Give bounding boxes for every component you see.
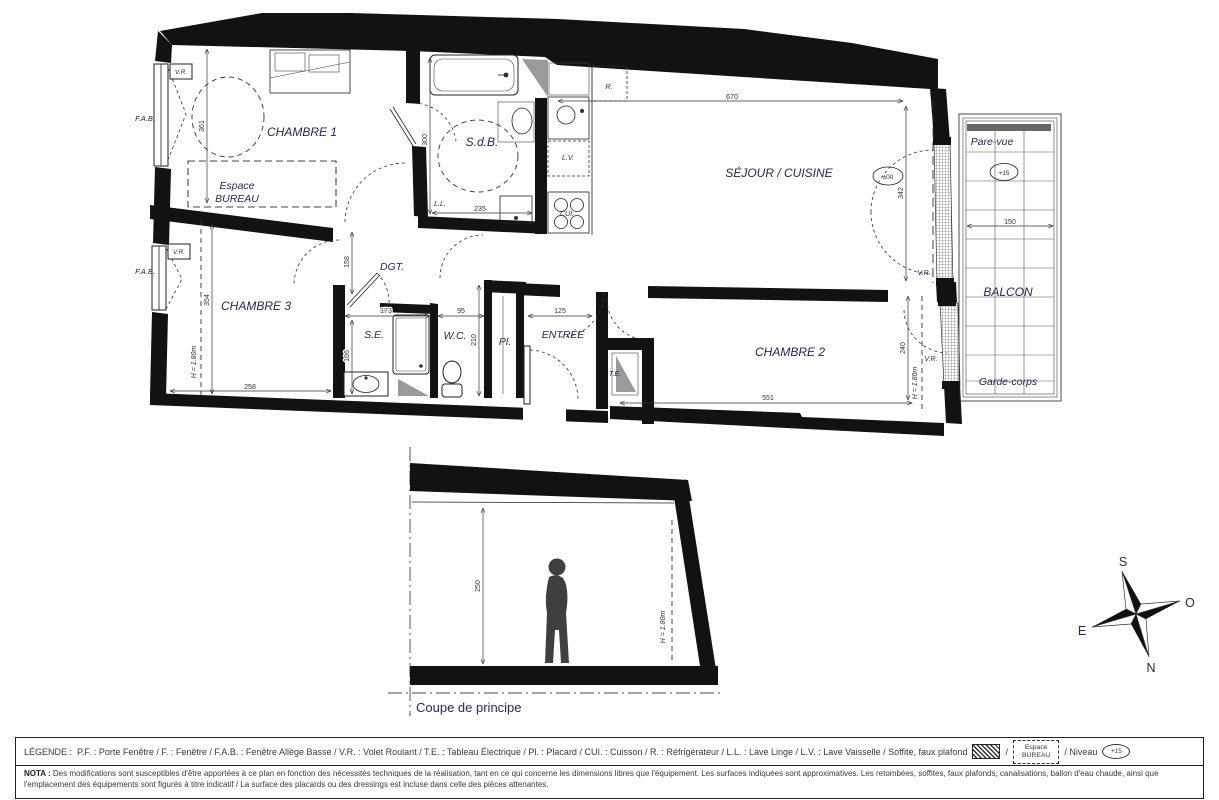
compass-n: N <box>1146 661 1155 675</box>
vr-label-4: V.R. <box>924 356 937 363</box>
dim-210: 210 <box>471 334 478 346</box>
sloped-ceiling-zone <box>192 77 264 157</box>
toilet-bowl <box>443 361 461 383</box>
dim-240: 240 <box>900 342 907 354</box>
soffite-triangle-se <box>398 379 429 396</box>
person-silhouette <box>545 559 569 664</box>
vr-label-1: V.R. <box>175 69 187 76</box>
te-niche: T.E. <box>608 350 642 406</box>
espace-bureau-zone: Espace BUREAU <box>188 161 336 207</box>
pare-vue-label: Pare-vue <box>971 136 1014 148</box>
plan-drawing: V.R. F.A.B. V.R. F.A.B. CHAMBRE 1 361 Es… <box>0 0 1219 735</box>
compass-s: S <box>1119 555 1127 569</box>
interior-walls <box>150 50 888 424</box>
room-label-chambre3: CHAMBRE 3 <box>221 299 291 313</box>
section-ceiling <box>410 463 692 501</box>
te-label: T.E. <box>609 371 621 378</box>
legend-band: LÉGENDE : P.F. : Porte Fenêtre / F. : Fe… <box>15 737 1204 799</box>
section-title: Coupe de principe <box>416 700 522 715</box>
compass-e: E <box>1078 624 1086 638</box>
pare-vue-screen <box>967 124 1051 131</box>
espace-bureau-line1: Espace <box>219 180 254 192</box>
soffite-triangle-sdb <box>522 59 548 97</box>
kitchen: R. L.V. CUI. <box>548 62 627 235</box>
room-chambre-2: CHAMBRE 2 551 240 H = 1.80m V.R. <box>607 296 947 412</box>
dim-150: 150 <box>1004 219 1016 226</box>
dim-158: 158 <box>344 256 351 268</box>
room-chambre-3: CHAMBRE 3 H = 1.80m 354 258 <box>170 220 339 396</box>
h180-section: H = 1.80m <box>660 611 667 644</box>
legend-niveau: / Niveau <box>1064 747 1097 757</box>
fab-label-2: F.A.B. <box>135 267 155 276</box>
door-arc-chambre2 <box>607 299 648 340</box>
niveau-badge: +15 <box>1102 744 1130 759</box>
nota-text: Des modifications sont susceptibles d'êt… <box>24 769 1158 789</box>
svg-text:±00: ±00 <box>883 174 894 181</box>
legend-sep: / <box>1005 747 1008 757</box>
toilet-tank <box>442 384 462 397</box>
section-view: 250 H = 1.80m Coupe de principe <box>388 447 722 716</box>
compass-o: O <box>1185 596 1195 610</box>
window-door-arc-2 <box>871 212 933 274</box>
nota-row: NOTA : Des modifications sont susceptibl… <box>15 766 1204 799</box>
room-label-sejour: SÉJOUR / CUISINE <box>725 165 833 180</box>
dim-342: 342 <box>898 187 905 199</box>
room-label-chambre2: CHAMBRE 2 <box>755 345 825 359</box>
dim-670: 670 <box>726 94 738 101</box>
dim-551: 551 <box>762 395 774 402</box>
sink-unit <box>548 97 589 139</box>
vr-label-3: V.R. <box>917 270 930 277</box>
balcony-window-strips <box>933 137 960 389</box>
door-arc-sdb <box>413 103 456 141</box>
room-placard: Pl. <box>499 296 511 394</box>
entrance-door-opening <box>523 403 566 424</box>
room-label-sdb: S.d.B. <box>466 135 499 149</box>
cabinet <box>549 63 589 95</box>
fab-label-1: F.A.B. <box>135 114 155 123</box>
fab-window-1: V.R. F.A.B. <box>135 64 192 166</box>
dim-258: 258 <box>244 384 256 391</box>
h180-chambre3: H = 1.80m <box>191 346 198 379</box>
door-arc-se <box>377 273 389 305</box>
dim-354: 354 <box>204 294 211 306</box>
legend-body: P.F. : Porte Fenêtre / F. : Fenêtre / F.… <box>77 747 967 757</box>
balcon-label: BALCON <box>983 285 1033 299</box>
legend-title: LÉGENDE : <box>24 747 72 757</box>
fab-window-2: V.R. F.A.B. <box>135 244 190 310</box>
floor-plan-page: { "labels": { "chambre1": "CHAMBRE 1", "… <box>0 0 1219 800</box>
bed <box>270 50 350 93</box>
dim-125: 125 <box>554 308 566 315</box>
espace-bureau-legend-box: Espace BUREAU <box>1013 740 1059 764</box>
dim-173: 173 <box>380 308 392 315</box>
room-se: S.E. 173 166 <box>344 273 430 396</box>
room-label-pl: Pl. <box>499 336 511 348</box>
room-sejour: SÉJOUR / CUISINE ±00 670 342 V.R. <box>558 94 933 283</box>
door-arc-wc <box>440 235 483 278</box>
soffite-hatch-swatch <box>972 744 1000 759</box>
legend-row: LÉGENDE : P.F. : Porte Fenêtre / F. : Fe… <box>15 737 1204 766</box>
door-arc-chambre3 <box>294 240 339 285</box>
entrance-door-arc <box>530 350 578 401</box>
svg-text:+15: +15 <box>998 170 1009 177</box>
ll-label: L.L. <box>434 201 446 208</box>
entrance-door-leaf <box>524 346 530 404</box>
room-label-entree: ENTRÉE <box>542 328 586 341</box>
room-entree: ENTRÉE 125 <box>524 293 604 404</box>
fridge-label: R. <box>606 84 613 91</box>
garde-corps-label: Garde-corps <box>979 376 1038 388</box>
door-arc-chambre1 <box>345 163 405 222</box>
room-dgt: DGT. 158 <box>344 232 483 294</box>
window-door-arc-1 <box>871 150 933 212</box>
dim-95: 95 <box>457 308 465 315</box>
sloped-ceiling-zone-sdb <box>438 120 518 192</box>
room-label-chambre1: CHAMBRE 1 <box>267 125 337 139</box>
balcony: Pare-vue +15 150 BALCON Garde-corps <box>959 114 1061 401</box>
washbasin <box>512 108 532 134</box>
section-floor <box>410 666 718 685</box>
compass-rose: S O E N <box>1078 555 1195 675</box>
h180-chambre2: H = 1.80m <box>912 367 919 400</box>
lv-label: L.V. <box>562 155 574 162</box>
washbasin-counter <box>498 102 534 142</box>
nota-title: NOTA : <box>24 769 51 778</box>
dim-361: 361 <box>199 120 206 132</box>
section-slanted-wall <box>674 479 718 682</box>
room-label-se: S.E. <box>364 329 384 341</box>
dim-250: 250 <box>475 580 482 592</box>
dim-235: 235 <box>474 206 486 213</box>
espace-bureau-line2: BUREAU <box>215 193 259 205</box>
dim-166: 166 <box>344 350 351 362</box>
dim-300: 300 <box>422 134 429 146</box>
shower-tray <box>393 315 429 374</box>
vr-label-2: V.R. <box>173 249 185 256</box>
room-label-dgt: DGT. <box>380 261 404 273</box>
cui-label: CUI. <box>560 211 574 218</box>
room-wc: W.C. 95 210 <box>438 285 484 397</box>
room-label-wc: W.C. <box>444 330 467 342</box>
